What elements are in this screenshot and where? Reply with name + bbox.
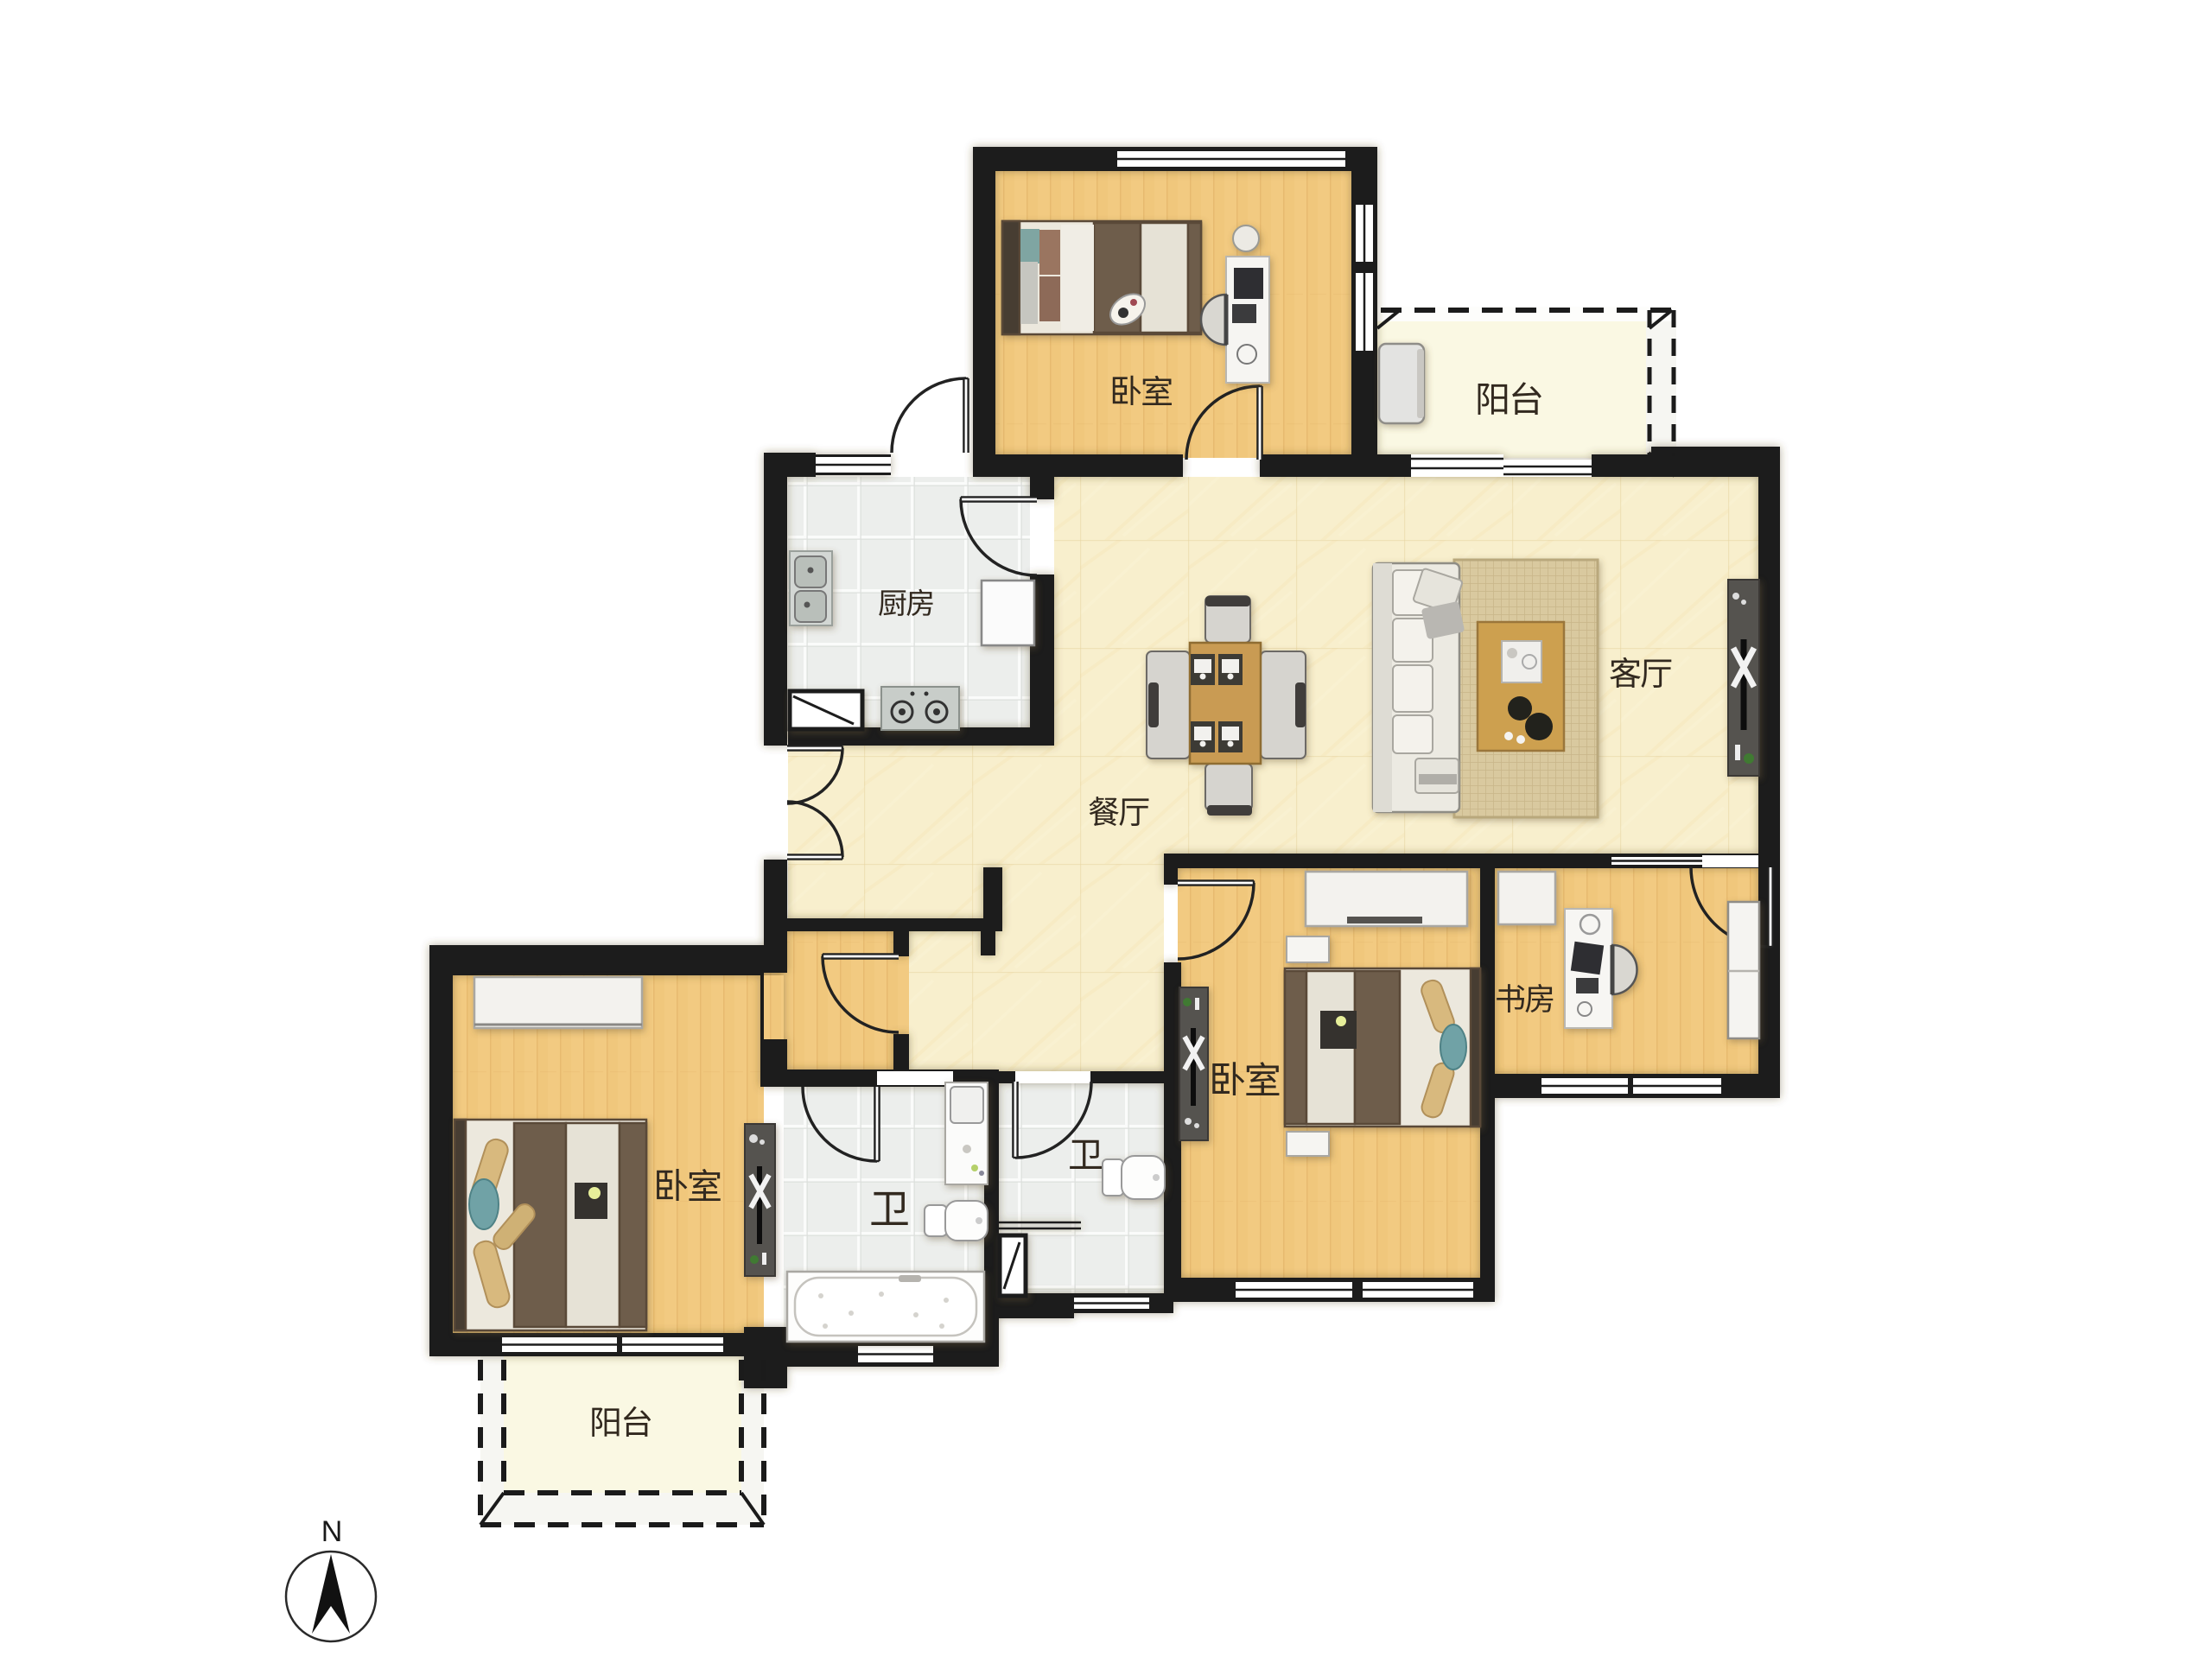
svg-text:N: N bbox=[321, 1515, 343, 1548]
